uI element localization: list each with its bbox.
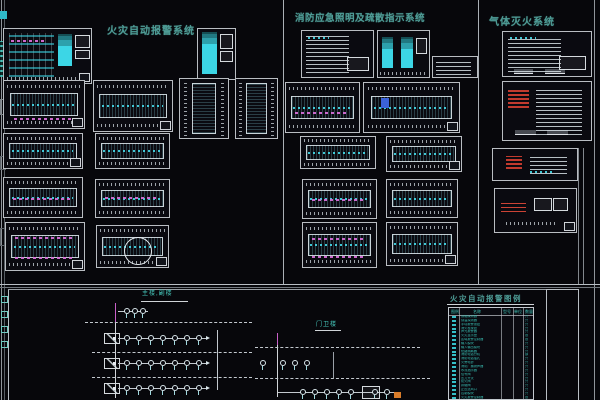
legend-header-cell: 型号 [503, 309, 511, 314]
device-circle [292, 360, 298, 366]
legend-header-cell: 名称 [473, 309, 481, 314]
edge-tick [1, 341, 8, 348]
legend-symbol [452, 381, 456, 383]
device-circle [124, 335, 130, 341]
legend-symbol [452, 320, 456, 322]
legend-row: 火灾报警控制器台 [449, 396, 533, 400]
section-title-emergency-lighting: 消防应急照明及疏散指示系统 [295, 10, 425, 24]
device-stem [262, 366, 263, 370]
legend-rows: 感烟探测器只感温探测器只手动报警按钮只消火栓按钮只声光报警器只火灾显示盘台区域报… [449, 315, 533, 400]
device-circle [184, 385, 190, 391]
drawing-panel-planv-10 [179, 78, 229, 139]
drawing-panel-plan-21 [302, 222, 377, 268]
orange-device [394, 392, 401, 398]
legend-symbol [452, 347, 456, 349]
legend-symbol [452, 366, 456, 368]
legend-symbol [452, 328, 456, 330]
legend-title: 火灾自动报警图例 [450, 293, 522, 304]
drawing-panel-planv-11 [235, 78, 278, 139]
drawing-panel-plan-4 [3, 177, 83, 218]
legend-symbol [452, 354, 456, 356]
band-frame-line [8, 289, 9, 400]
device-circle [184, 335, 190, 341]
device-stem [150, 391, 151, 395]
device-stem [126, 341, 127, 345]
legend-symbol [452, 339, 456, 341]
border-line [583, 148, 584, 285]
drawing-panel-plan-7 [95, 133, 170, 169]
label-underline [141, 301, 188, 302]
device-circle [196, 385, 202, 391]
device-stem [126, 314, 127, 318]
legend-symbol [452, 331, 456, 333]
drawing-panel-plan-6 [93, 80, 173, 132]
device-stem [198, 366, 199, 370]
device-stem [150, 341, 151, 345]
device-circle [124, 308, 130, 314]
drawing-panel-plan-20 [386, 179, 458, 218]
drawing-panel-tower-1 [197, 28, 236, 80]
edge-tick [1, 311, 8, 318]
device-stem [186, 341, 187, 345]
border-line [578, 148, 579, 285]
device-stem [126, 366, 127, 370]
section-title-gas-suppression: 气体灭火系统 [489, 13, 555, 28]
device-circle [124, 360, 130, 366]
drawing-panel-plan-5 [5, 222, 85, 271]
schematic-main-label: 主楼,副楼 [142, 291, 173, 298]
drawing-panel-tower2-13 [377, 30, 430, 78]
legend-unit: 台 [525, 396, 528, 400]
edge-tick [1, 326, 8, 333]
band-frame-line [8, 289, 577, 290]
device-stem [186, 366, 187, 370]
schematic-gatehouse-label: 门卫楼 [316, 322, 337, 329]
device-stem [138, 366, 139, 370]
device-circle [124, 385, 130, 391]
legend-table: 图例名称型号单位数量 感烟探测器只感温探测器只手动报警按钮只消火栓按钮只声光报警… [448, 307, 534, 400]
device-circle [280, 360, 286, 366]
device-stem [138, 391, 139, 395]
device-stem [314, 395, 315, 399]
drawing-panel-plan-2 [3, 80, 85, 129]
drawing-panel-plan-9 [96, 225, 169, 268]
drawing-panel-red2-25 [492, 148, 578, 181]
device-stem [186, 391, 187, 395]
legend-symbol [452, 351, 456, 353]
drawing-panel-plan-8 [95, 179, 170, 218]
legend-symbol [452, 385, 456, 387]
device-stem [162, 391, 163, 395]
device-circle [304, 360, 310, 366]
device-circle [172, 335, 178, 341]
device-stem [134, 314, 135, 318]
device-circle [172, 385, 178, 391]
device-circle [312, 389, 318, 395]
border-line [594, 0, 595, 400]
drawing-panel-plan-15 [285, 82, 360, 133]
section-divider [478, 0, 479, 285]
legend-symbol [452, 324, 456, 326]
legend-symbol [452, 343, 456, 345]
device-stem [138, 341, 139, 345]
legend-header-cell: 图例 [451, 309, 459, 314]
device-circle [384, 389, 390, 395]
device-circle [348, 389, 354, 395]
device-stem [126, 391, 127, 395]
device-circle [160, 335, 166, 341]
legend-symbol [452, 374, 456, 376]
device-circle [160, 385, 166, 391]
horizontal-divider [0, 284, 600, 285]
drawing-panel-notesS-14 [432, 56, 478, 78]
drawing-panel-riser-0 [3, 28, 92, 84]
legend-symbol [452, 335, 456, 337]
legend-title-underline [447, 304, 534, 305]
drawing-panel-plan-16 [363, 82, 460, 133]
device-circle [136, 385, 142, 391]
device-stem [338, 395, 339, 399]
device-stem [350, 395, 351, 399]
device-circle [324, 389, 330, 395]
device-circle [184, 360, 190, 366]
device-stem [282, 366, 283, 370]
device-circle [132, 308, 138, 314]
device-stem [162, 366, 163, 370]
device-stem [294, 366, 295, 370]
device-stem [306, 366, 307, 370]
device-stem [174, 341, 175, 345]
legend-symbol [452, 358, 456, 360]
device-circle [172, 360, 178, 366]
section-title-fire-alarm: 火灾自动报警系统 [107, 22, 195, 37]
drawing-panel-plan-3 [3, 133, 83, 169]
bus-dashed-line [85, 322, 252, 323]
bus-dashed-line [255, 378, 430, 379]
device-stem [326, 395, 327, 399]
device-circle [136, 360, 142, 366]
device-circle [148, 335, 154, 341]
drawing-panel-plan-18 [386, 136, 462, 172]
bus-dashed-line [92, 377, 252, 378]
device-circle [196, 335, 202, 341]
band-right-box [546, 289, 579, 400]
device-stem [162, 341, 163, 345]
legend-symbol [452, 370, 456, 372]
device-stem [174, 366, 175, 370]
device-circle [136, 335, 142, 341]
device-circle [140, 308, 146, 314]
device-stem [302, 395, 303, 399]
drawing-panel-plan-17 [300, 136, 376, 169]
device-circle [160, 360, 166, 366]
drawing-panel-red3-26 [494, 188, 577, 233]
device-circle [148, 360, 154, 366]
device-stem [198, 391, 199, 395]
label-underline [315, 330, 341, 331]
bus-dashed-line [92, 352, 252, 353]
device-circle [300, 389, 306, 395]
legend-symbol [452, 316, 456, 318]
horizontal-divider [0, 287, 600, 288]
legend-header-cell: 数量 [525, 309, 533, 314]
drawing-panel-red1-24 [502, 81, 592, 141]
device-circle [196, 360, 202, 366]
legend-header-cell: 单位 [514, 309, 522, 314]
device-stem [150, 366, 151, 370]
edge-fragment [0, 11, 7, 19]
device-circle [148, 385, 154, 391]
device-stem [174, 391, 175, 395]
legend-name: 火灾报警控制器 [461, 396, 483, 400]
bus-dashed-line [255, 347, 420, 348]
legend-symbol [452, 362, 456, 364]
legend-symbol [452, 389, 456, 391]
device-circle [260, 360, 266, 366]
drawing-panel-notes-12 [301, 30, 374, 78]
device-stem [386, 395, 387, 399]
cad-viewport[interactable]: 火灾自动报警系统 消防应急照明及疏散指示系统 气体灭火系统 主楼,副楼 门卫楼 … [0, 0, 600, 400]
control-box [362, 386, 380, 399]
drawing-panel-plan-19 [302, 179, 377, 219]
device-stem [198, 341, 199, 345]
device-stem [142, 314, 143, 318]
section-divider [283, 0, 284, 285]
drawing-panel-plan-22 [386, 222, 458, 266]
legend-symbol [452, 397, 456, 399]
legend-symbol [452, 378, 456, 380]
legend-symbol [452, 393, 456, 395]
edge-tick [1, 296, 8, 303]
drawing-panel-notes-23 [502, 31, 592, 77]
device-circle [336, 389, 342, 395]
